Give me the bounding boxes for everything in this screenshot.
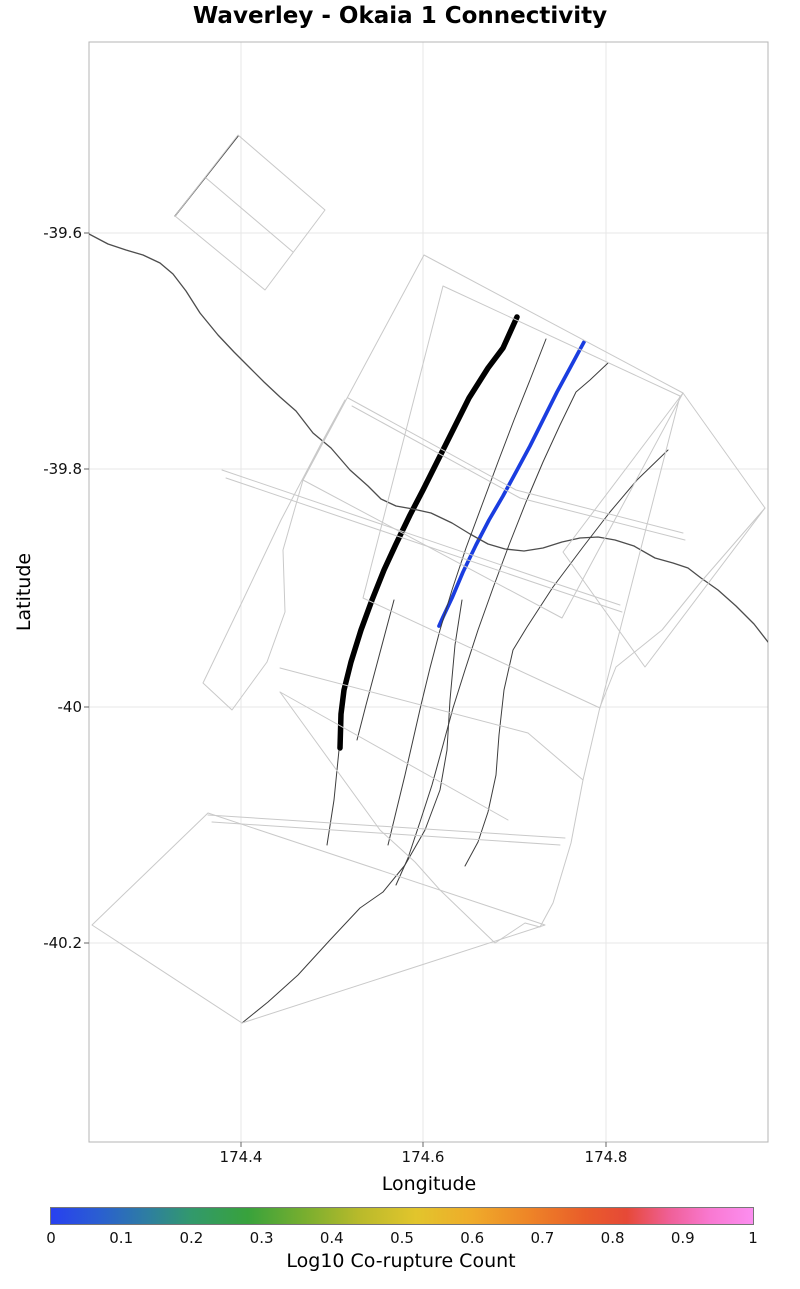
colorbar-tick-label: 0.5 [390, 1229, 414, 1247]
projection-mid-strip-2b [226, 478, 622, 612]
projection-west-strip [203, 400, 345, 710]
projection-low-strip-c [280, 668, 583, 780]
fault-trace-a [388, 339, 546, 845]
projection-nw-rect-divider [206, 178, 293, 252]
colorbar-label: Log10 Co-rupture Count [50, 1250, 752, 1272]
colorbar-tick-label: 0.7 [530, 1229, 554, 1247]
okaia-1-fault-trace [439, 342, 584, 626]
colorbar-gradient [50, 1207, 754, 1225]
waverley-fault-trace [340, 317, 517, 748]
y-axis-label: Latitude [13, 553, 35, 631]
colorbar-tick-label: 0.1 [109, 1229, 133, 1247]
projection-nw-rect [175, 135, 325, 290]
x-axis-label: Longitude [0, 1173, 800, 1195]
projection-low-strip-d [280, 692, 508, 820]
x-tick-label: 174.4 [220, 1148, 263, 1166]
colorbar-tick-label: 1 [748, 1229, 758, 1247]
x-tick-label: 174.6 [402, 1148, 445, 1166]
projection-low-strip-a [208, 815, 565, 838]
projection-central-rect-2 [363, 286, 680, 708]
projection-east-diamond [563, 393, 765, 667]
plot-border [89, 42, 768, 1142]
colorbar-tick-label: 0.6 [460, 1229, 484, 1247]
y-tick-label: -39.6 [43, 224, 82, 242]
colorbar-tick-label: 0.8 [601, 1229, 625, 1247]
gridlines [89, 42, 768, 1142]
x-tick-label: 174.8 [585, 1148, 628, 1166]
projection-low-strip-b [212, 822, 560, 845]
colorbar-tick-label: 0.9 [671, 1229, 695, 1247]
coastline [89, 234, 768, 642]
colorbar-tick-label: 0 [46, 1229, 56, 1247]
colorbar-tick-label: 0.2 [179, 1229, 203, 1247]
colorbar-tick-label: 0.3 [250, 1229, 274, 1247]
projection-mid-strip-1a [348, 398, 683, 533]
y-tick-label: -39.8 [43, 460, 82, 478]
fault-lines-layer [89, 135, 768, 1023]
y-tick-label: -40 [58, 698, 83, 716]
projection-south-boundary [280, 508, 765, 943]
figure-canvas: Waverley - Okaia 1 Connectivity 174.4174… [0, 0, 800, 1289]
colorbar-tick-label: 0.4 [320, 1229, 344, 1247]
map-canvas [0, 0, 800, 1289]
y-tick-label: -40.2 [43, 934, 82, 952]
